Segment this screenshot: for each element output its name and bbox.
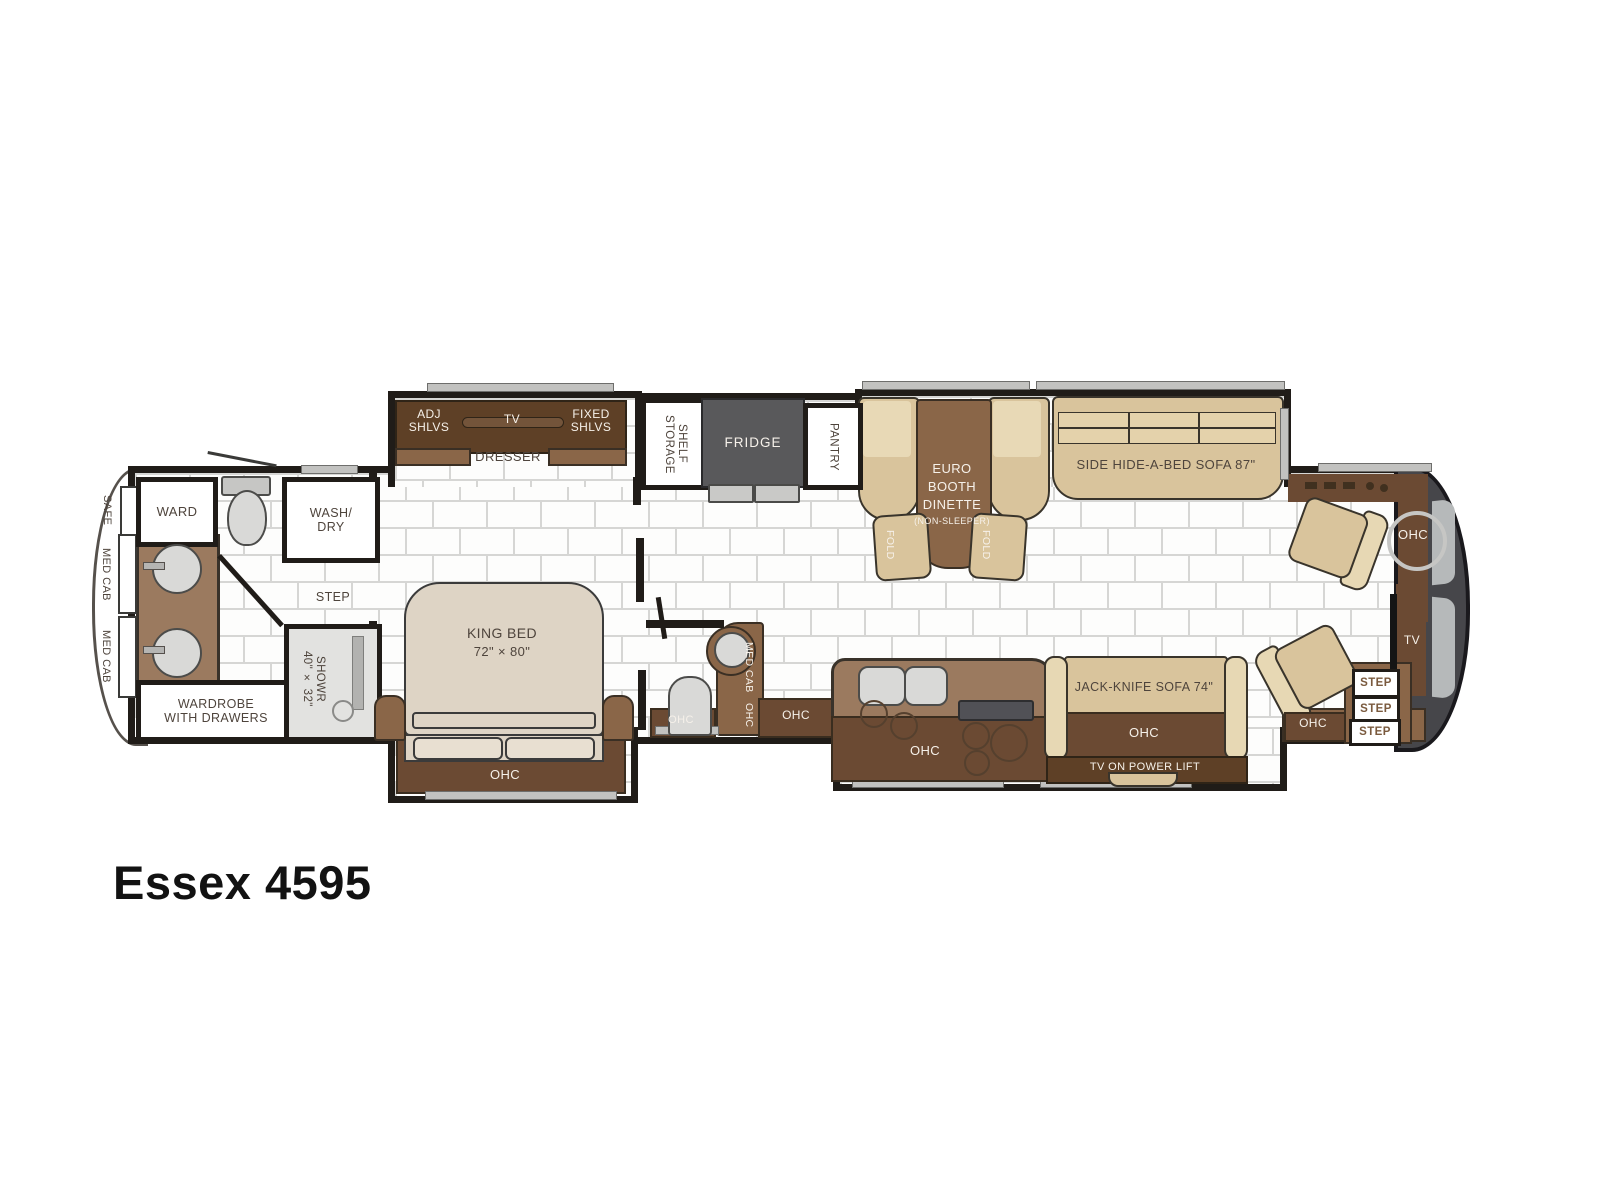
- fridge: FRIDGE: [701, 398, 805, 488]
- dinette-label-3: DINETTE: [916, 498, 988, 513]
- jack-sofa-armrest-left: [1044, 656, 1068, 760]
- hall-ohc-label: OHC: [758, 709, 834, 722]
- sofa-side-window: [1280, 408, 1289, 480]
- fold-label-left: FOLD: [880, 518, 898, 572]
- shelf-storage-label: SHELF STORAGE: [662, 408, 688, 480]
- king-bed-seam: [412, 712, 596, 729]
- jack-sofa-ohc-label: OHC: [1064, 726, 1224, 741]
- fridge-tray-left: [708, 484, 754, 503]
- dinette-label-1: EURO: [916, 462, 988, 477]
- fridge-tray-right: [754, 484, 800, 503]
- bed-ohc-label: OHC: [450, 768, 560, 783]
- front-window-rail: [1318, 463, 1432, 472]
- fold-label-right: FOLD: [976, 518, 994, 572]
- half-bath-top-wall: [646, 620, 724, 628]
- med-cab-label-2: MED CAB: [94, 618, 118, 694]
- step-1-label: STEP: [1360, 677, 1392, 690]
- adj-shlvs-label: ADJ SHLVS: [398, 408, 460, 435]
- jack-sofa-armrest-right: [1224, 656, 1248, 760]
- washer-dryer: WASH/ DRY: [282, 477, 380, 563]
- nightstand-left: [374, 695, 406, 741]
- slide-rail-bedroom: [427, 383, 614, 392]
- pantry: PANTRY: [803, 403, 863, 490]
- entry-step-1: STEP: [1352, 669, 1400, 698]
- slide-rail-sofa: [1036, 381, 1285, 390]
- jack-knife-sofa-label: JACK-KNIFE SOFA 74": [1064, 680, 1224, 694]
- fixed-shlvs-label: FIXED SHLVS: [560, 408, 622, 435]
- sofa-seam-1: [1128, 412, 1130, 444]
- sofa-seam-2: [1198, 412, 1200, 444]
- med-cab-label-1: MED CAB: [94, 538, 118, 610]
- fridge-label: FRIDGE: [724, 435, 781, 450]
- page-title: Essex 4595: [113, 855, 372, 910]
- dinette-label-2: BOOTH: [916, 480, 988, 495]
- dash-ohc-label: OHC: [1388, 528, 1438, 543]
- bath-window: [301, 465, 358, 474]
- burner-2: [990, 724, 1028, 762]
- front-tv-label: TV: [1398, 634, 1426, 647]
- kitchen-knob-2: [890, 712, 918, 740]
- med-cab-bracket-1: [118, 534, 137, 614]
- dash-vent-3: [1343, 482, 1355, 489]
- kitchen-sink-left: [858, 666, 906, 706]
- safe-label: SAFE: [96, 484, 118, 536]
- wardrobe-drawers-label: WARDROBE WITH DRAWERS: [164, 697, 268, 725]
- shower-label: SHOWR 40" × 32": [293, 632, 333, 726]
- slide-rail-dinette: [862, 381, 1030, 390]
- windshield-glass-lower: [1432, 597, 1455, 699]
- tv-power-lift-label: TV ON POWER LIFT: [1046, 761, 1244, 773]
- wardrobe-with-drawers: WARDROBE WITH DRAWERS: [136, 680, 296, 742]
- shelf-storage: SHELF STORAGE: [641, 398, 709, 490]
- tv-lift-tab: [1108, 772, 1178, 787]
- wardrobe-closet: WARD: [136, 477, 218, 547]
- ward-label: WARD: [157, 505, 198, 520]
- nightstand-right: [602, 695, 634, 741]
- vanity-faucet-upper: [143, 562, 165, 570]
- dash-vent-2: [1324, 482, 1336, 489]
- dinette-bench-right-back: [993, 401, 1041, 457]
- toilet-bowl: [227, 490, 267, 546]
- half-bath-left-wall: [638, 670, 646, 730]
- vanity-faucet-lower: [143, 646, 165, 654]
- sofa-back-rail-2: [1058, 428, 1276, 444]
- half-bath-toilet: [668, 676, 712, 736]
- kitchen-knob-1: [860, 700, 888, 728]
- bedroom-tv-label: TV: [462, 413, 562, 426]
- bath-door-line: [207, 451, 276, 467]
- cooktop-panel: [958, 700, 1034, 721]
- floorplan-canvas: SAFE MED CAB MED CAB WARD WASH/ DRY WARD…: [0, 0, 1600, 1200]
- sofa-back-rail-1: [1058, 412, 1276, 428]
- king-bed-size-label: 72" × 80": [432, 645, 572, 660]
- step-2-label: STEP: [1360, 703, 1392, 716]
- bedroom-wall-stub: [633, 477, 641, 505]
- step-3-label: STEP: [1359, 726, 1391, 739]
- dinette-bench-left-back: [863, 401, 911, 457]
- dash-gauge-2: [1380, 484, 1388, 492]
- shower-drain: [332, 700, 354, 722]
- dresser-label: DRESSER: [452, 450, 564, 465]
- dash-gauge-1: [1366, 482, 1374, 490]
- hall-wall: [636, 538, 644, 602]
- entry-step-3: STEP: [1349, 719, 1401, 746]
- pillow-left: [413, 737, 503, 760]
- king-bed-label: KING BED: [432, 626, 572, 642]
- shower-fixture-bar: [352, 636, 364, 710]
- hide-a-bed-sofa-label: SIDE HIDE-A-BED SOFA 87": [1058, 458, 1274, 473]
- half-bath-ohc-vertical-label: OHC: [738, 698, 758, 732]
- kitchen-sink-right: [904, 666, 948, 706]
- bath-step-label: STEP: [303, 590, 363, 604]
- slide-rail-bed-bottom: [425, 791, 617, 800]
- kitchen-ohc-label: OHC: [880, 744, 970, 759]
- entry-ohc-label: OHC: [1284, 717, 1342, 730]
- half-bath-med-cab-label: MED CAB: [738, 638, 758, 696]
- wash-dry-label: WASH/ DRY: [310, 506, 353, 534]
- pillow-right: [505, 737, 595, 760]
- pantry-label: PANTRY: [827, 413, 840, 481]
- half-bath-ohc-toilet-label: OHC: [650, 714, 712, 726]
- med-cab-bracket-2: [118, 616, 137, 698]
